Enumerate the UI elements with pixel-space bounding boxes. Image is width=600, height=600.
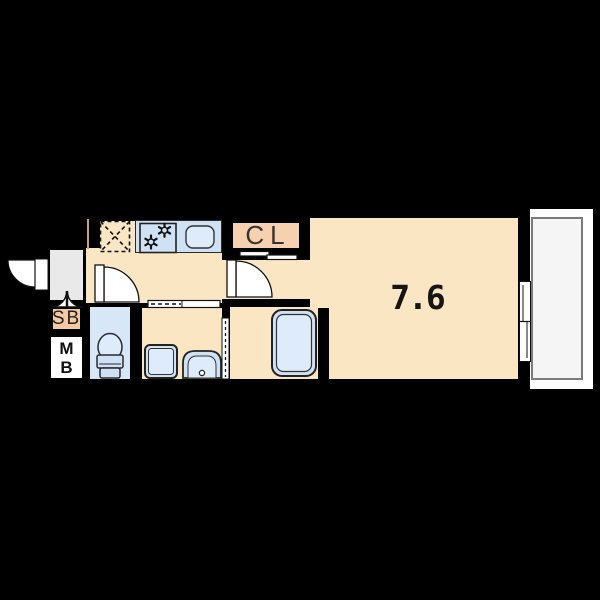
washroom-floor — [142, 308, 222, 379]
room-size-text: 7.6 — [390, 278, 444, 317]
room-size-label: 7.6 — [375, 279, 459, 315]
entry-hallway-floor — [86, 248, 105, 303]
passage-floor — [222, 260, 312, 299]
bathroom-floor — [230, 307, 318, 379]
meter-box-label-b: B — [60, 358, 72, 377]
meter-box-label-m: M — [59, 339, 73, 358]
floorplan: CL SB M B 7.6 — [0, 0, 600, 600]
balcony — [530, 209, 593, 389]
closet-label: CL — [245, 220, 290, 251]
shoe-box: SB — [51, 307, 82, 331]
kitchen-counter — [135, 220, 222, 253]
toilet-room-floor — [90, 307, 130, 379]
balcony-inner — [531, 217, 583, 380]
shoe-box-label: SB — [52, 308, 81, 330]
genkan-porch — [50, 250, 83, 300]
closet-box: CL — [230, 220, 302, 251]
meter-box: M B — [51, 337, 82, 378]
entrance-door-swing-icon — [8, 259, 48, 290]
